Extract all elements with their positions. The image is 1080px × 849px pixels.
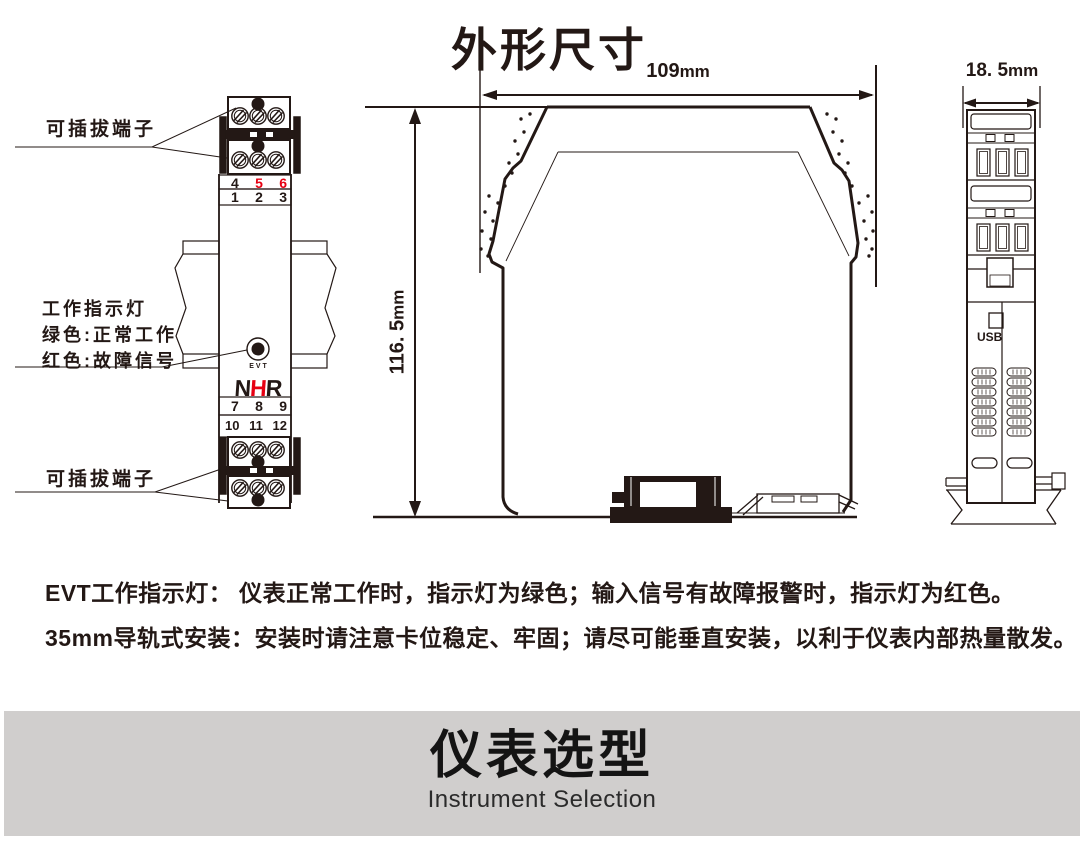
section-banner: 仪表选型 Instrument Selection: [4, 711, 1080, 836]
height-value: 116. 5: [387, 320, 409, 375]
depth-unit: mm: [1008, 61, 1038, 80]
pluggable-terminal-label-bottom: 可插拔端子: [46, 464, 156, 491]
note-rail-mounting: 35mm导轨式安装：安装时请注意卡位稳定、牢固；请尽可能垂直安装，以利于仪表内部…: [45, 619, 1077, 653]
banner-subtitle: Instrument Selection: [4, 786, 1080, 814]
banner-title: 仪表选型: [4, 728, 1080, 785]
terminal-11: 11: [249, 418, 263, 433]
indicator-label: 工作指示灯 绿色:正常工作 红色:故障信号: [42, 296, 177, 374]
height-unit: mm: [389, 290, 408, 320]
terminal-1: 1: [231, 189, 239, 205]
dimension-lines: [365, 65, 876, 517]
indicator-label-line1: 工作指示灯: [42, 296, 177, 322]
rail-clip: [610, 476, 732, 523]
end-view-body: [967, 110, 1035, 503]
pluggable-terminal-label-top: 可插拔端子: [46, 114, 156, 141]
bottom-terminal-block: [220, 437, 300, 508]
terminal-3: 3: [279, 189, 287, 205]
inner-panel-line: [506, 152, 849, 261]
manual-page: 外形尺寸: [0, 0, 1080, 849]
side-view-drawing: [360, 55, 890, 535]
depth-value: 18. 5: [966, 60, 1008, 81]
height-dimension-label: 116. 5mm: [387, 290, 410, 375]
top-terminal-block: [220, 97, 300, 174]
logo-letter-n: N: [234, 375, 251, 401]
depth-dimension-label: 18. 5mm: [966, 60, 1039, 82]
rail-mount: [946, 473, 1065, 524]
terminal-2: 2: [255, 189, 263, 205]
end-view-drawing: [940, 55, 1080, 545]
width-dimension-label: 109mm: [646, 60, 710, 83]
usb-label: USB: [977, 330, 1002, 344]
vent-dots: [479, 112, 874, 257]
depth-dimension-lines: [963, 86, 1040, 128]
logo-letter-r: R: [265, 375, 282, 401]
release-latch: [723, 494, 858, 515]
terminal-12: 12: [273, 418, 287, 433]
width-unit: mm: [680, 62, 710, 81]
note-evt-indicator: EVT工作指示灯： 仪表正常工作时，指示灯为绿色；输入信号有故障报警时，指示灯为…: [45, 574, 1015, 608]
indicator-label-line2: 绿色:正常工作: [42, 322, 177, 348]
evt-led-label: EVT: [249, 363, 269, 370]
terminal-row-101112: 10 11 12: [225, 418, 287, 433]
terminal-row-123: 1 2 3: [231, 189, 287, 205]
housing-outline: [373, 107, 858, 517]
width-value: 109: [646, 60, 679, 82]
nhr-logo: NHR: [234, 375, 283, 402]
indicator-label-line3: 红色:故障信号: [42, 348, 177, 374]
usb-port: [989, 313, 1003, 328]
led-indicator: [247, 338, 269, 360]
terminal-10: 10: [225, 418, 239, 433]
